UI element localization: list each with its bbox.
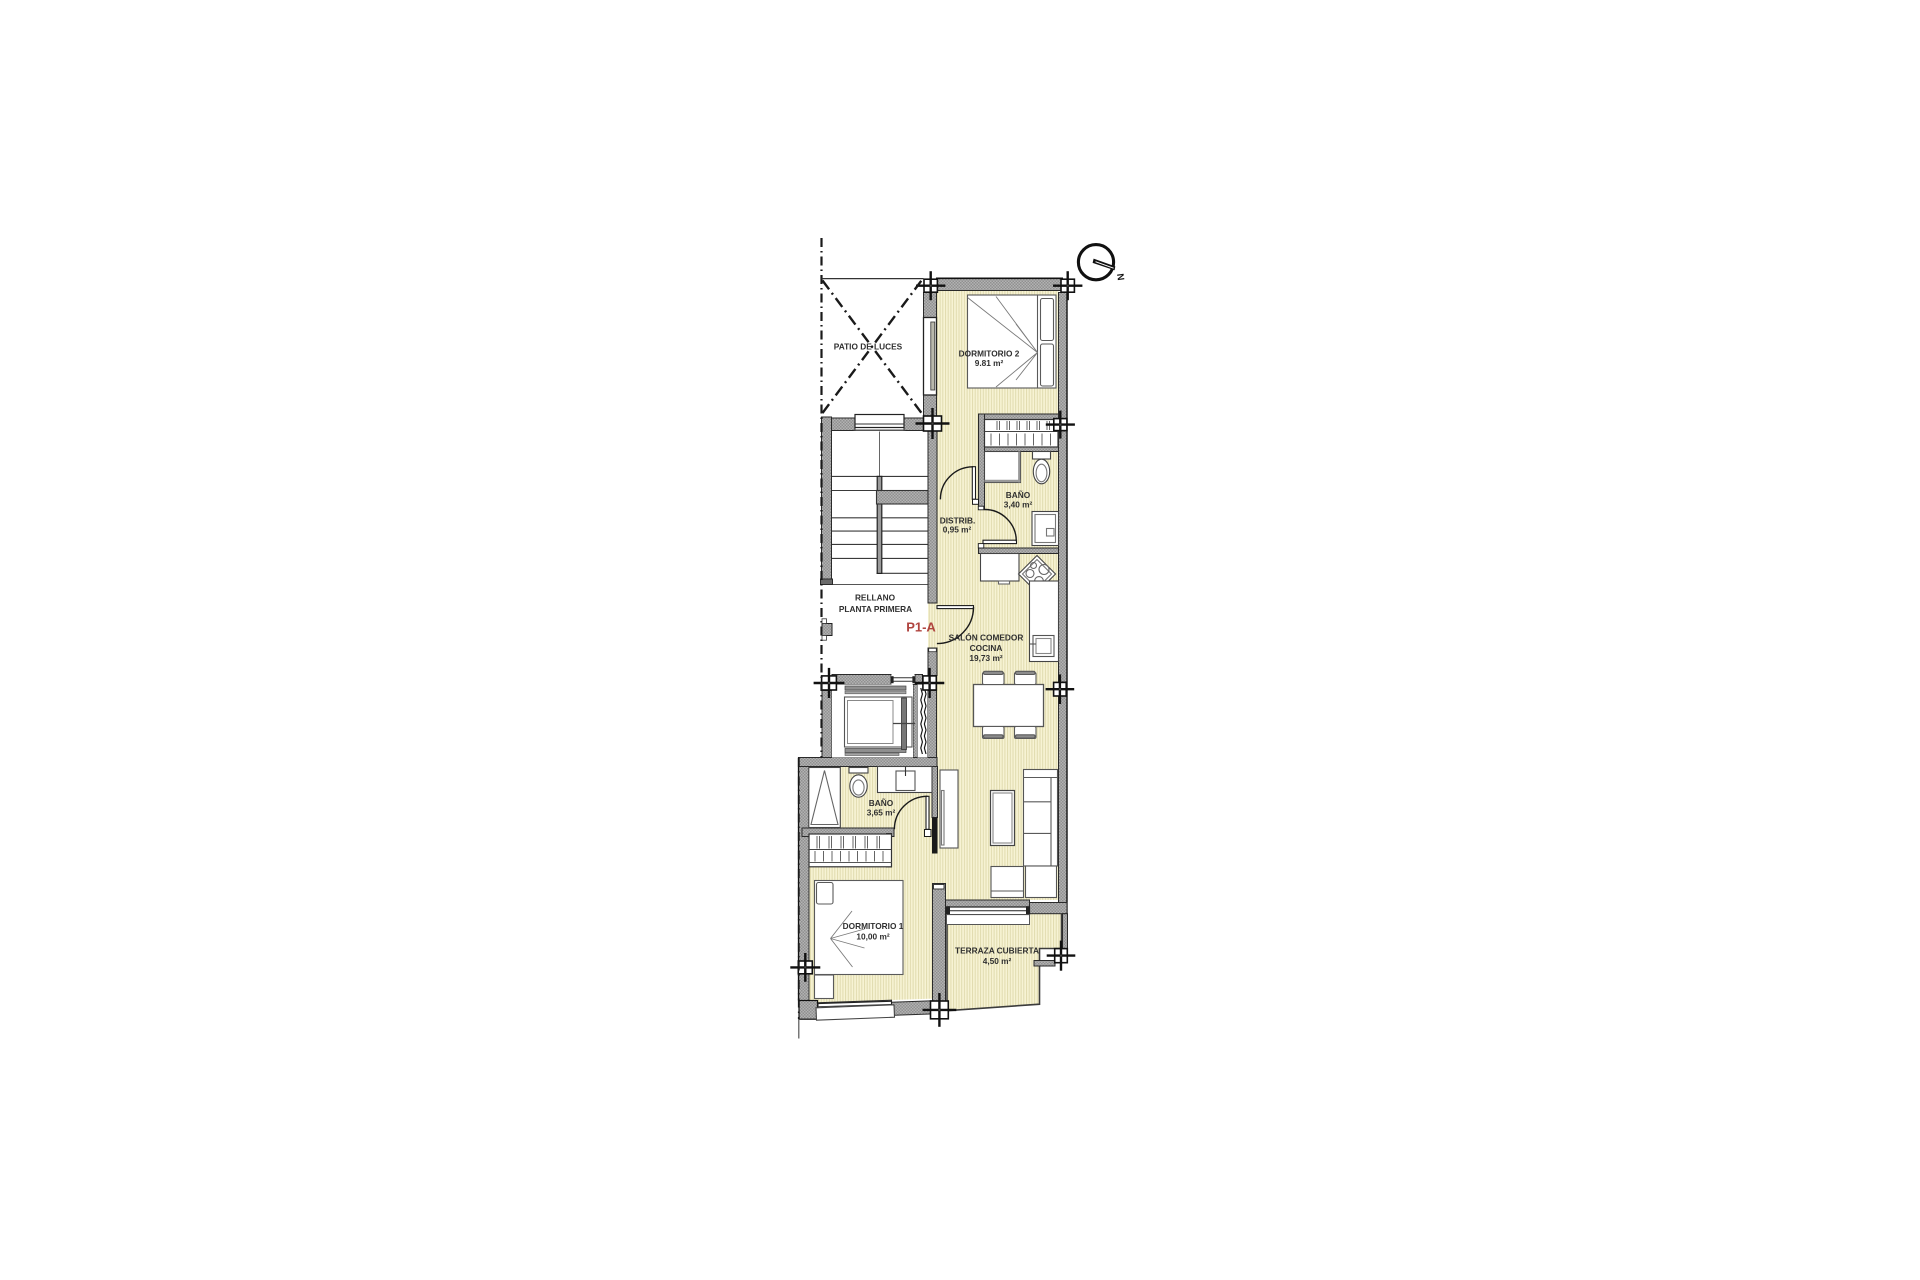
svg-text:0,95 m²: 0,95 m² xyxy=(943,525,972,535)
svg-text:BAÑO: BAÑO xyxy=(869,798,894,808)
svg-text:19,73 m²: 19,73 m² xyxy=(969,653,1002,663)
svg-text:3,40 m²: 3,40 m² xyxy=(1004,499,1033,509)
svg-text:PATIO DE LUCES: PATIO DE LUCES xyxy=(834,342,903,352)
svg-text:PLANTA PRIMERA: PLANTA PRIMERA xyxy=(839,604,912,614)
svg-text:TERRAZA CUBIERTA: TERRAZA CUBIERTA xyxy=(955,946,1039,956)
svg-text:SALÓN COMEDOR: SALÓN COMEDOR xyxy=(949,632,1024,643)
svg-text:DORMITORIO 2: DORMITORIO 2 xyxy=(959,349,1020,359)
svg-text:COCINA: COCINA xyxy=(970,643,1003,653)
svg-text:4,50 m²: 4,50 m² xyxy=(983,956,1012,966)
svg-text:3,65 m²: 3,65 m² xyxy=(867,808,896,818)
svg-text:9.81 m²: 9.81 m² xyxy=(975,358,1004,368)
svg-text:DORMITORIO 1: DORMITORIO 1 xyxy=(843,921,904,931)
svg-text:10,00 m²: 10,00 m² xyxy=(856,932,889,942)
svg-text:RELLANO: RELLANO xyxy=(855,593,896,603)
svg-text:P1-A: P1-A xyxy=(906,620,936,635)
